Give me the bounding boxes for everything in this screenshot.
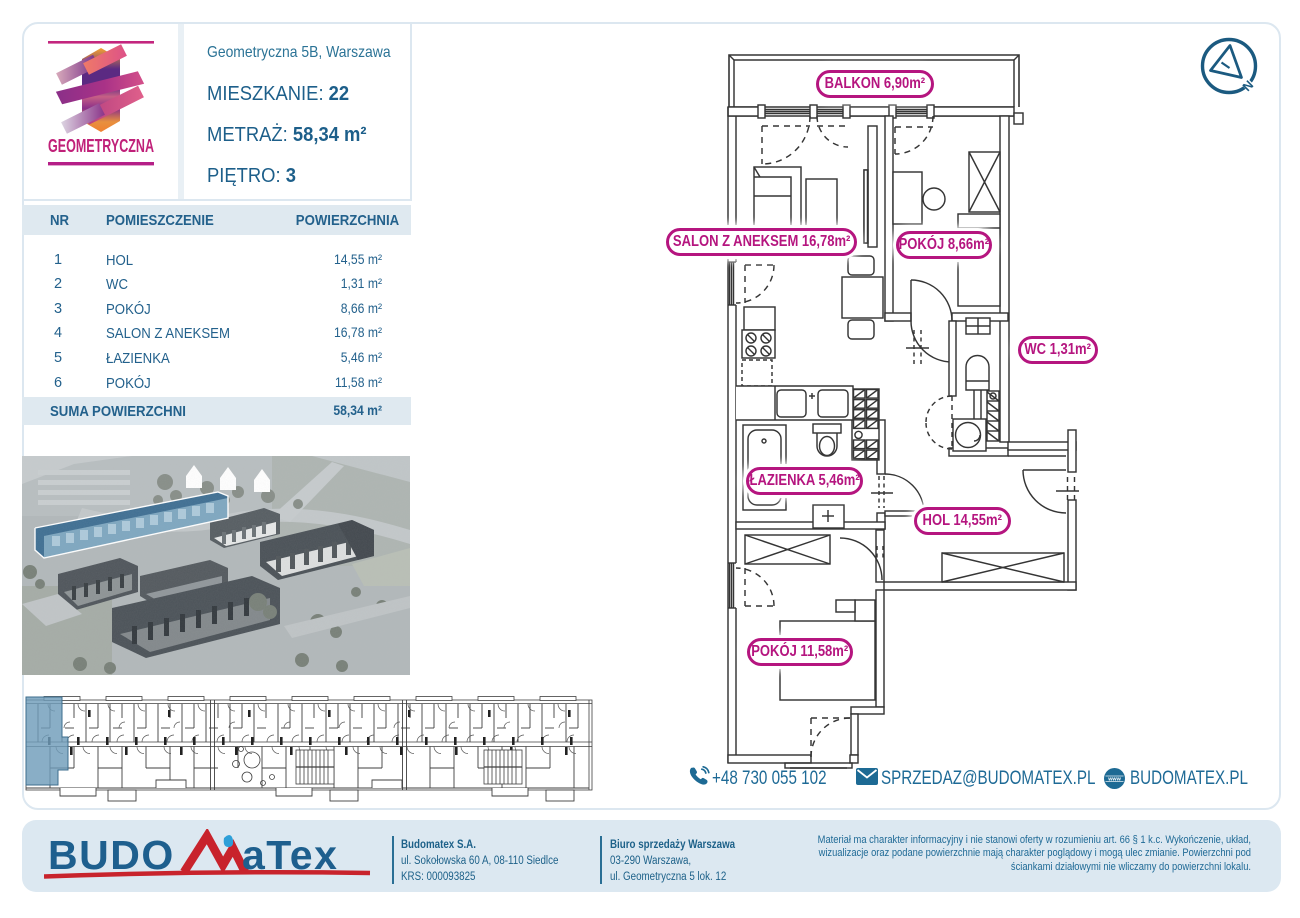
svg-text:www: www bbox=[1107, 777, 1121, 783]
svg-text:GEOMETRYCZNA: GEOMETRYCZNA bbox=[48, 135, 154, 156]
svg-text:BUDO: BUDO bbox=[48, 832, 175, 878]
